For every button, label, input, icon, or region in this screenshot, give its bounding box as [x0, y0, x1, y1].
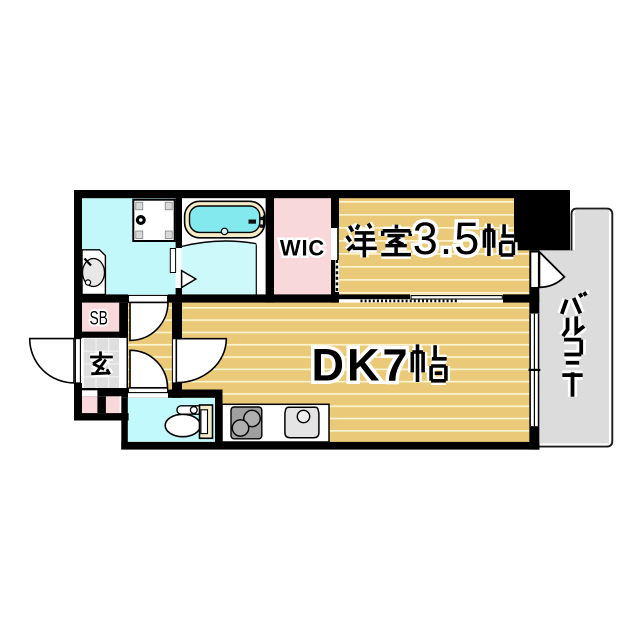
svg-text:SB: SB — [89, 308, 108, 329]
svg-text:DK7: DK7 — [311, 340, 410, 391]
svg-text:WIC: WIC — [280, 236, 325, 261]
svg-text:3.5: 3.5 — [413, 213, 482, 264]
